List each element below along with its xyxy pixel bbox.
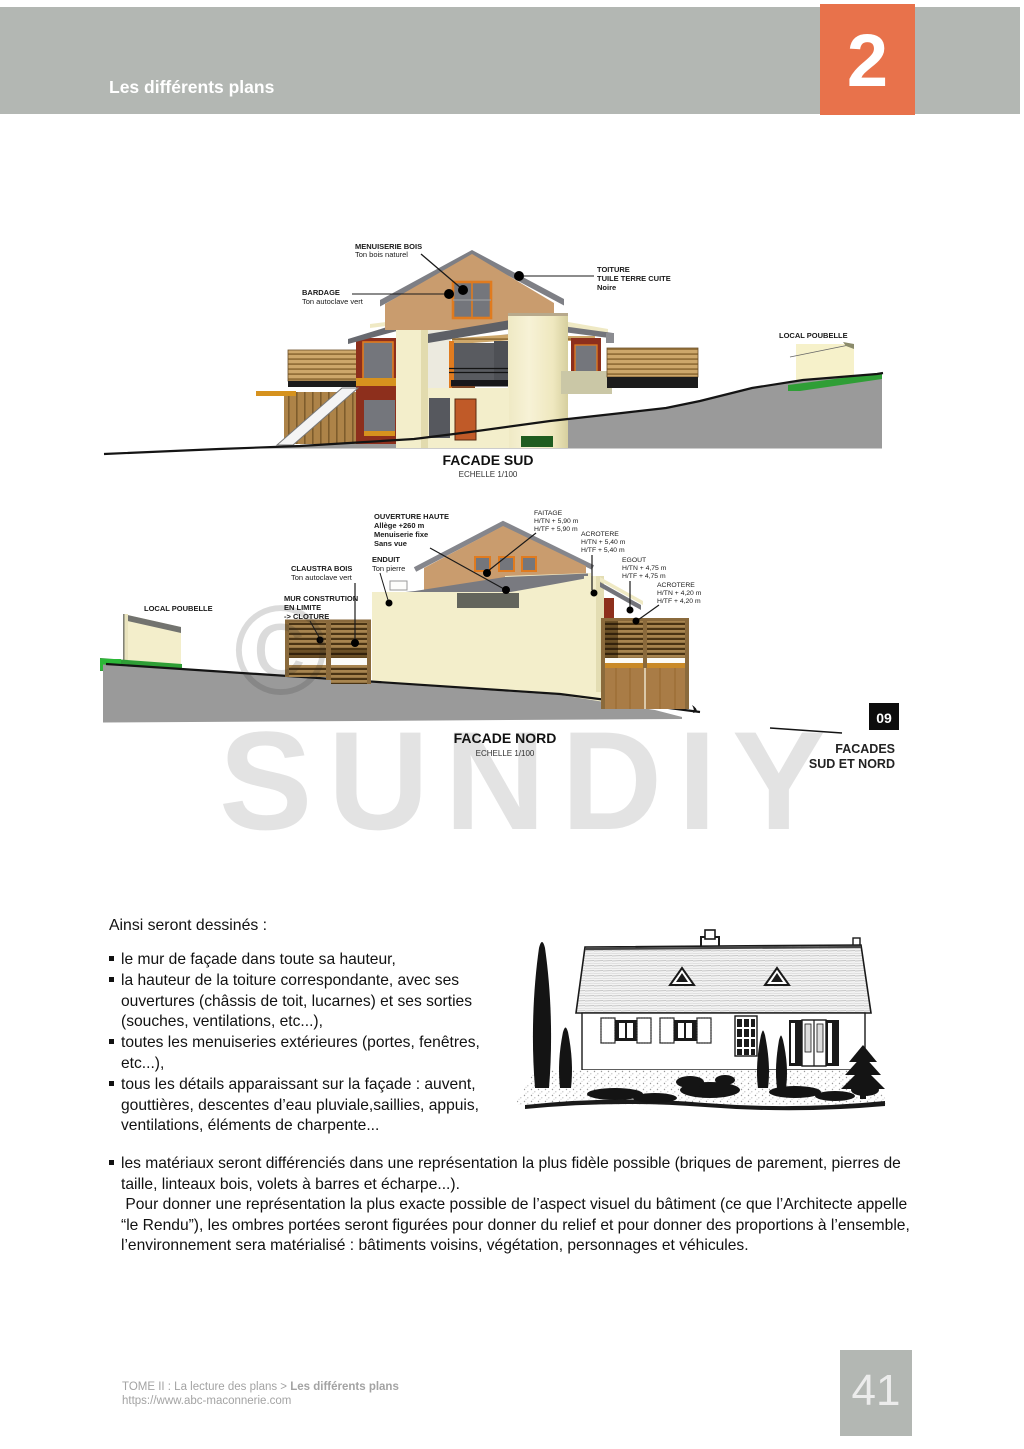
svg-text:BARDAGE: BARDAGE: [302, 288, 340, 297]
svg-text:FAITAGE: FAITAGE: [534, 510, 563, 517]
svg-text:TOITURE: TOITURE: [597, 265, 630, 274]
svg-text:EGOUT: EGOUT: [622, 557, 646, 564]
svg-text:ENDUIT: ENDUIT: [372, 555, 400, 564]
svg-text:H/TN + 5,40 m: H/TN + 5,40 m: [581, 539, 626, 546]
svg-text:Ton bois naturel: Ton bois naturel: [355, 250, 408, 259]
svg-text:©: ©: [234, 579, 328, 721]
svg-text:H/TN + 4,75 m: H/TN + 4,75 m: [622, 565, 667, 572]
svg-text:H/TF + 4,20 m: H/TF + 4,20 m: [657, 598, 701, 605]
svg-text:ECHELLE 1/100: ECHELLE 1/100: [459, 470, 518, 479]
svg-text:ACROTERE: ACROTERE: [657, 582, 695, 589]
svg-text:Allège +260 m: Allège +260 m: [374, 521, 425, 530]
svg-text:H/TN + 4,20 m: H/TN + 4,20 m: [657, 590, 702, 597]
svg-text:FACADES: FACADES: [835, 742, 895, 756]
svg-text:Ton pierre: Ton pierre: [372, 564, 405, 573]
svg-text:H/TN + 5,90 m: H/TN + 5,90 m: [534, 518, 579, 525]
svg-text:Ton autoclave vert: Ton autoclave vert: [302, 297, 364, 306]
svg-text:LOCAL POUBELLE: LOCAL POUBELLE: [144, 604, 213, 613]
svg-text:Noire: Noire: [597, 283, 616, 292]
svg-text:09: 09: [876, 710, 892, 726]
svg-text:H/TF + 5,90 m: H/TF + 5,90 m: [534, 526, 578, 533]
svg-text:SUNDIY: SUNDIY: [219, 702, 841, 859]
svg-text:TUILE TERRE CUITE: TUILE TERRE CUITE: [597, 274, 671, 283]
svg-text:H/TF + 5,40 m: H/TF + 5,40 m: [581, 547, 625, 554]
svg-text:Menuiserie fixe: Menuiserie fixe: [374, 530, 428, 539]
svg-text:H/TF + 4,75 m: H/TF + 4,75 m: [622, 573, 666, 580]
svg-text:FACADE SUD: FACADE SUD: [442, 452, 533, 468]
svg-text:Sans vue: Sans vue: [374, 539, 407, 548]
svg-text:ACROTERE: ACROTERE: [581, 531, 619, 538]
svg-text:LOCAL POUBELLE: LOCAL POUBELLE: [779, 331, 848, 340]
svg-text:OUVERTURE HAUTE: OUVERTURE HAUTE: [374, 512, 449, 521]
svg-text:CLAUSTRA BOIS: CLAUSTRA BOIS: [291, 564, 352, 573]
